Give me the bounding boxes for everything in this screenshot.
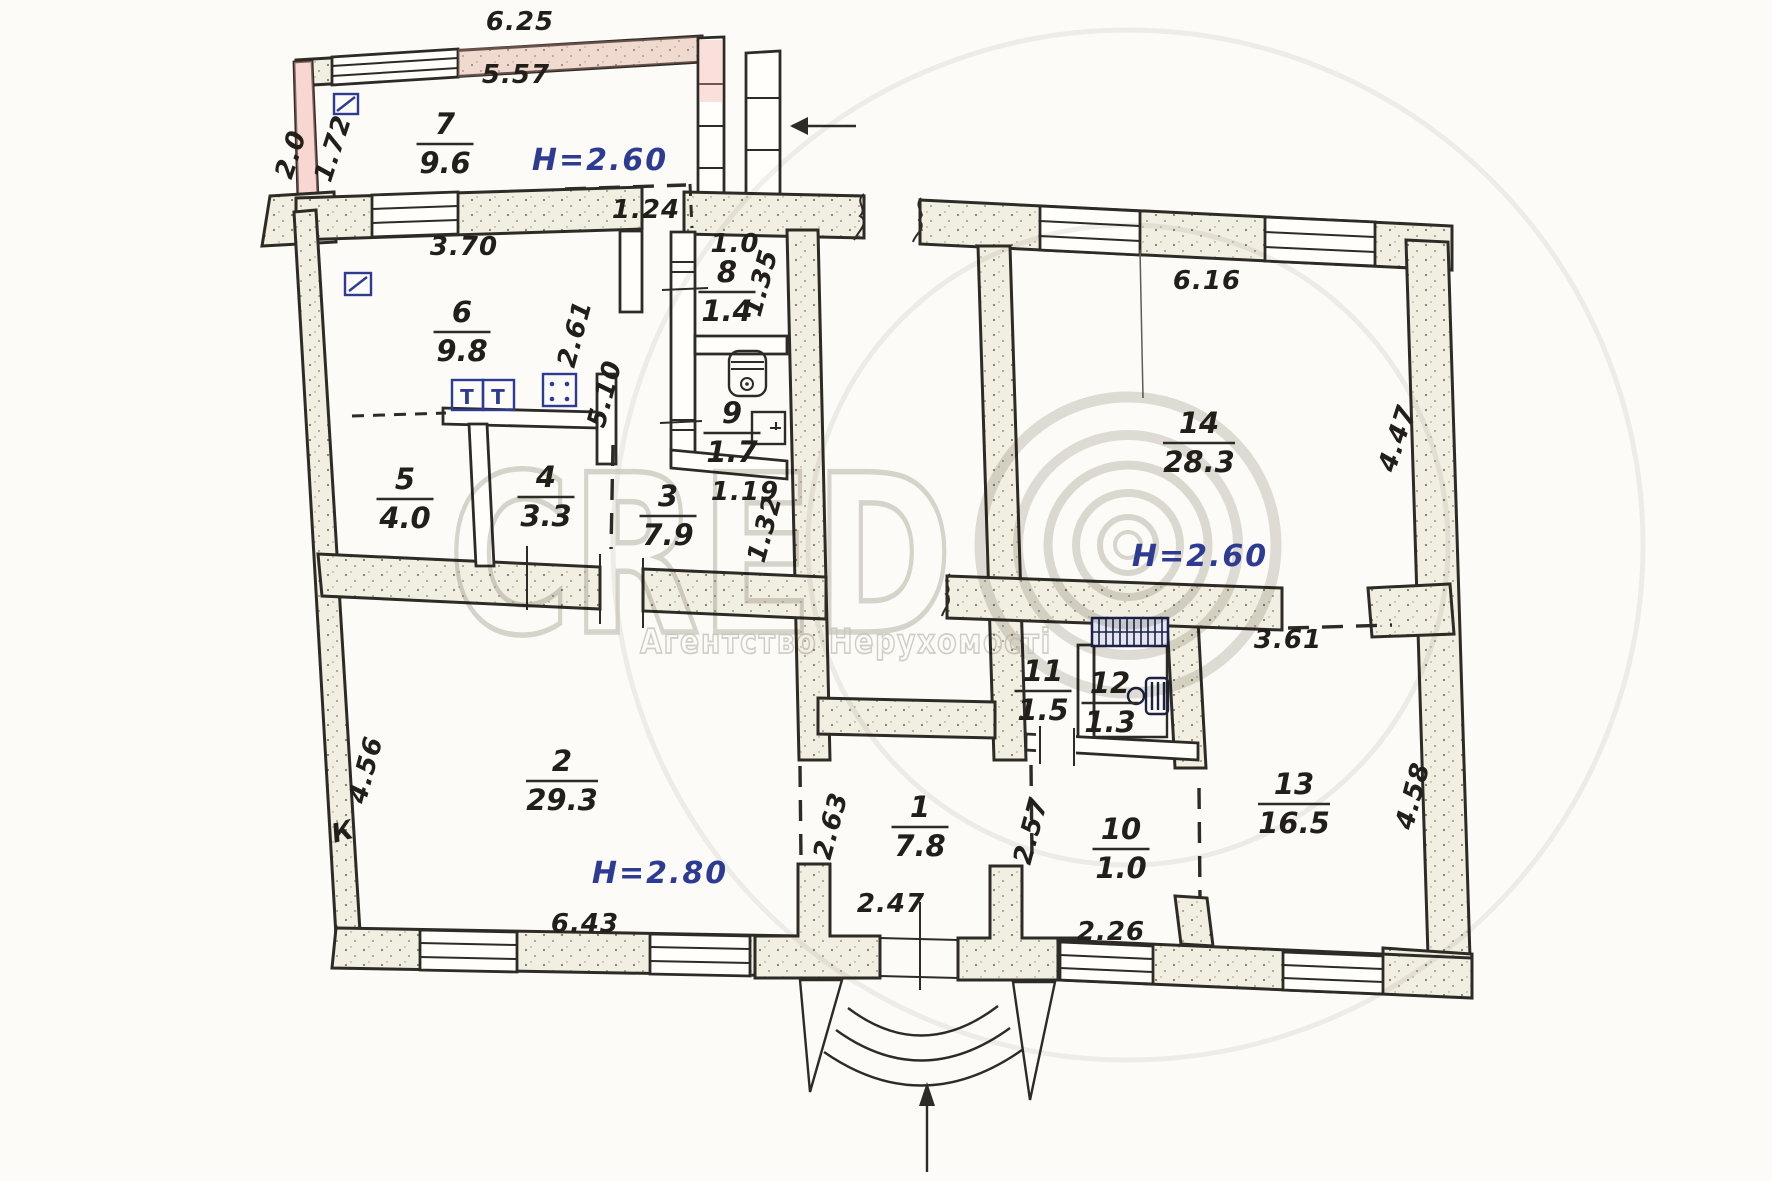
dim-1.0: 1.0 [710, 229, 759, 259]
svg-text:Т: Т [460, 385, 474, 409]
svg-text:1.3: 1.3 [1084, 705, 1135, 739]
height-label: H=2.60 [532, 143, 668, 178]
dim-3.70: 3.70 [430, 232, 498, 262]
dim-6.16: 6.16 [1173, 266, 1241, 296]
svg-text:7.8: 7.8 [894, 829, 945, 863]
svg-text:12: 12 [1090, 666, 1130, 700]
dim-3.61: 3.61 [1254, 625, 1322, 655]
height-label: H=2.80 [592, 856, 728, 891]
svg-text:13: 13 [1274, 767, 1314, 801]
svg-text:29.3: 29.3 [526, 783, 598, 817]
scanned-floor-plan: Т Т [0, 0, 1772, 1181]
room6-window [372, 192, 458, 237]
window [1040, 206, 1140, 255]
svg-text:3.3: 3.3 [520, 499, 571, 533]
dim-1.24: 1.24 [612, 195, 680, 225]
window [420, 930, 517, 972]
window [650, 934, 750, 976]
svg-text:4: 4 [535, 460, 556, 494]
floor-plan-drawing: Т Т [0, 0, 1772, 1181]
svg-text:7.9: 7.9 [642, 518, 693, 552]
window [1265, 217, 1375, 266]
door-gap [1036, 728, 1076, 764]
svg-text:10: 10 [1101, 812, 1141, 846]
svg-text:1.0: 1.0 [1095, 851, 1146, 885]
dim-2.26: 2.26 [1077, 917, 1145, 947]
svg-text:9.8: 9.8 [436, 334, 487, 368]
svg-text:8: 8 [717, 255, 737, 289]
svg-text:28.3: 28.3 [1163, 445, 1235, 479]
svg-text:14: 14 [1179, 406, 1219, 440]
svg-text:9.6: 9.6 [419, 146, 470, 180]
window [1060, 942, 1153, 984]
dim-6.25: 6.25 [486, 7, 554, 37]
room6-right-wall [620, 231, 642, 312]
svg-text:6: 6 [452, 295, 472, 329]
svg-text:7: 7 [435, 107, 456, 141]
svg-text:9: 9 [722, 396, 742, 430]
bottom-stub-pillar [1175, 896, 1213, 946]
room1-top-wall [818, 698, 995, 738]
dim-5.57: 5.57 [482, 60, 550, 90]
bay-window [332, 49, 458, 85]
svg-text:4.0: 4.0 [378, 501, 430, 535]
svg-text:5: 5 [395, 462, 415, 496]
watermark-subtitle: Агентство Нерухомості [640, 622, 1052, 662]
svg-text:3: 3 [658, 479, 678, 513]
svg-text:2: 2 [552, 744, 572, 778]
svg-text:1: 1 [910, 790, 930, 824]
room-label-11: 111.5 [1015, 654, 1072, 727]
dim-6.43: 6.43 [551, 909, 619, 939]
svg-text:Т: Т [491, 385, 505, 409]
svg-text:1.7: 1.7 [706, 435, 758, 469]
window [1283, 952, 1383, 994]
height-label: H=2.60 [1132, 539, 1268, 574]
svg-text:1.5: 1.5 [1017, 693, 1068, 727]
room-label-10: 101.0 [1093, 812, 1150, 885]
dim-2.47: 2.47 [857, 889, 925, 919]
svg-text:11: 11 [1023, 654, 1063, 688]
room-label-12: 121.3 [1082, 666, 1139, 739]
svg-text:16.5: 16.5 [1258, 806, 1330, 840]
